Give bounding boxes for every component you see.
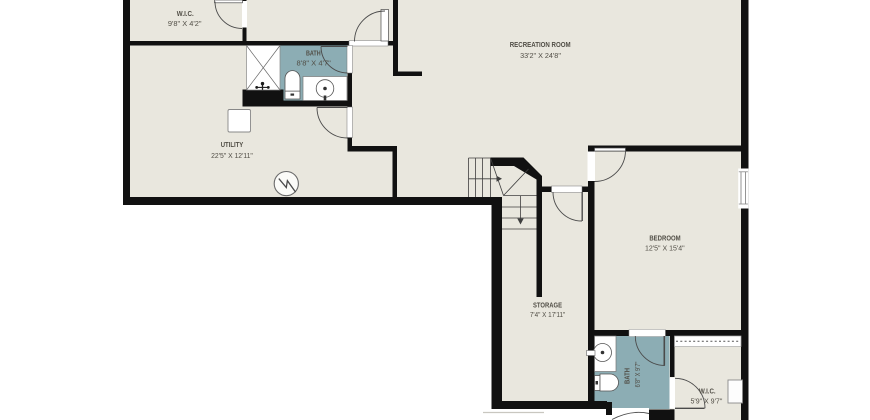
- svg-text:12'5" X 15'4": 12'5" X 15'4": [645, 244, 685, 253]
- svg-text:RECREATION ROOM: RECREATION ROOM: [510, 40, 571, 49]
- svg-text:6'8" X 9'7": 6'8" X 9'7": [633, 361, 642, 387]
- svg-text:BEDROOM: BEDROOM: [649, 234, 680, 243]
- svg-text:W.I.C.: W.I.C.: [177, 9, 194, 18]
- svg-text:STORAGE: STORAGE: [533, 301, 562, 310]
- svg-text:UTILITY: UTILITY: [221, 140, 244, 149]
- svg-text:22'5" X 12'11": 22'5" X 12'11": [211, 151, 253, 160]
- svg-text:5'9" X 9'7": 5'9" X 9'7": [690, 397, 722, 406]
- svg-text:W.I.C.: W.I.C.: [699, 386, 716, 395]
- svg-text:8'8" X 4'7": 8'8" X 4'7": [297, 58, 332, 67]
- svg-text:7'4" X 17'11": 7'4" X 17'11": [530, 310, 566, 319]
- svg-text:9'8" X 4'2": 9'8" X 4'2": [168, 19, 202, 28]
- svg-text:BATH: BATH: [623, 368, 632, 384]
- svg-text:BATH: BATH: [306, 49, 321, 58]
- svg-text:33'2" X 24'8": 33'2" X 24'8": [520, 51, 561, 60]
